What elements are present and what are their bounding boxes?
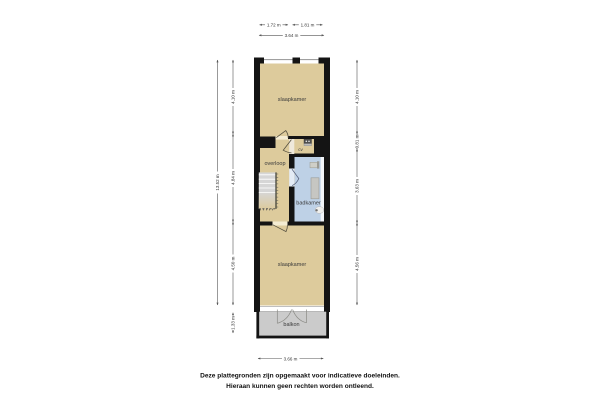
svg-text:balkon: balkon: [283, 322, 299, 328]
svg-text:0.81 m: 0.81 m: [355, 134, 360, 148]
svg-text:1.72 m: 1.72 m: [267, 23, 281, 28]
svg-text:3.63 m: 3.63 m: [355, 179, 360, 193]
svg-text:1.81 m: 1.81 m: [301, 23, 315, 28]
svg-text:3.66 m: 3.66 m: [284, 356, 298, 361]
svg-text:slaapkamer: slaapkamer: [278, 97, 307, 103]
svg-text:4.56 m: 4.56 m: [355, 257, 360, 271]
svg-text:cv: cv: [298, 147, 303, 152]
svg-text:badkamer: badkamer: [296, 200, 321, 206]
svg-text:4.50 m: 4.50 m: [231, 256, 236, 270]
svg-text:Hieraan kunnen geen rechten wo: Hieraan kunnen geen rechten worden ontle…: [226, 383, 374, 390]
svg-text:4.10 m: 4.10 m: [355, 90, 360, 104]
svg-text:Deze plattegronden zijn opgema: Deze plattegronden zijn opgemaakt voor i…: [200, 373, 400, 380]
svg-text:3.64 m: 3.64 m: [285, 33, 299, 38]
svg-text:slaapkamer: slaapkamer: [278, 262, 307, 268]
svg-text:4.84 m: 4.84 m: [231, 171, 236, 185]
svg-text:1.33 m: 1.33 m: [231, 316, 236, 330]
svg-text:overloop: overloop: [264, 161, 285, 167]
svg-text:4.10 m: 4.10 m: [231, 90, 236, 104]
svg-text:13.52 m: 13.52 m: [215, 174, 220, 191]
